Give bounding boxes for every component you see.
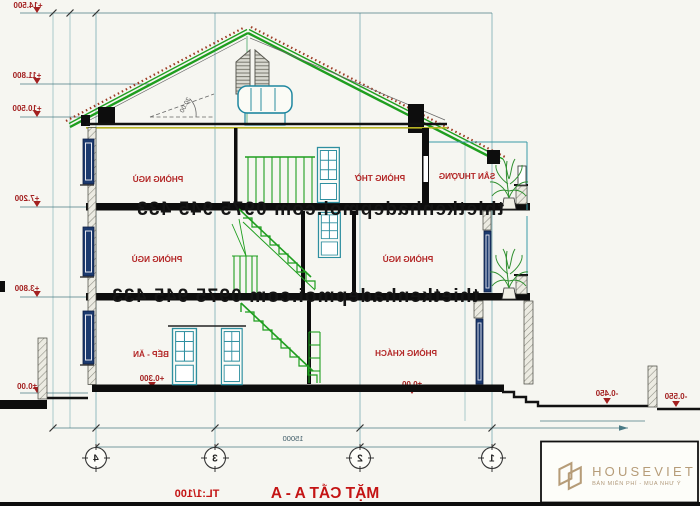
room-label-bedroom-top: PHÒNG NGỦ xyxy=(133,173,184,184)
houseviet-logo-name: HOUSEVIET xyxy=(592,465,696,479)
svg-text:4: 4 xyxy=(93,454,99,465)
grid-bubbles: 4 3 2 1 xyxy=(82,444,506,472)
total-width-dimension: 15000 xyxy=(283,434,304,443)
terrace xyxy=(429,142,528,299)
houseviet-logo-icon xyxy=(556,458,585,494)
houseviet-logo-text: HOUSEVIET BÁN MIỄN PHÍ - MUA NHƯ Ý xyxy=(592,465,696,487)
grid-lines xyxy=(53,13,492,447)
left-exterior-wall xyxy=(0,128,96,385)
drawing-sheet: 15000 +14.500 +11.800 +10.500 +7.200 +3.… xyxy=(0,0,700,506)
section-drawing: 15000 +14.500 +11.800 +10.500 +7.200 +3.… xyxy=(0,0,700,506)
drawing-scale-text: TL:1/100 xyxy=(175,488,220,500)
houseviet-logo-tagline: BÁN MIỄN PHÍ - MUA NHƯ Ý xyxy=(592,481,696,487)
top-floor-door xyxy=(317,148,339,203)
room-label-terrace: SÂN THƯỢNG xyxy=(439,170,496,181)
staircase xyxy=(232,157,320,383)
level-label-ground: ±0.00 xyxy=(16,382,37,391)
grid-bubble: 3 xyxy=(201,444,229,472)
roof-angle-annotation: 30.00 xyxy=(150,94,214,117)
kitchen-door-2 xyxy=(221,329,242,385)
level-label-kitchen: +0.300 xyxy=(139,374,164,383)
kitchen-door-1 xyxy=(173,329,197,385)
grid-bubble: 2 xyxy=(346,444,374,472)
ground-works xyxy=(0,338,700,421)
watermark-text-lower: thietkenhadepmoi.com 0975 945 433 xyxy=(111,286,479,307)
level-label-yard-far: -0.550 xyxy=(664,392,687,401)
svg-text:2: 2 xyxy=(357,454,363,465)
water-tank xyxy=(238,86,292,125)
houseviet-logo: HOUSEVIET BÁN MIỄN PHÍ - MUA NHƯ Ý xyxy=(556,453,696,499)
level-label-yard-near: -0.450 xyxy=(595,389,618,398)
room-label-bedroom-mid-left: PHÒNG NGỦ xyxy=(132,253,183,264)
watermark-text-upper: thietkenhadepmoi.com 0975 945 433 xyxy=(136,199,504,220)
svg-text:3: 3 xyxy=(212,454,218,465)
roof-angle-label: 30.00 xyxy=(179,96,193,114)
left-window-top xyxy=(83,139,94,184)
room-label-kitchen: BẾP - ĂN xyxy=(133,349,169,359)
grid-bubble: 4 xyxy=(82,444,110,472)
left-window-middle xyxy=(83,227,94,276)
drawing-title: MẶT CẮT A - A TL:1/100 xyxy=(175,484,380,502)
svg-text:1: 1 xyxy=(489,454,495,465)
room-label-worship: PHÒNG THỜ xyxy=(355,172,405,183)
left-window-ground xyxy=(83,311,94,364)
drawing-title-text: MẶT CẮT A - A xyxy=(271,484,379,502)
grid-bubble: 1 xyxy=(478,444,506,472)
room-label-bedroom-mid-right: PHÒNG NGỦ xyxy=(383,253,434,264)
room-label-living: PHÒNG KHÁCH xyxy=(375,347,437,358)
